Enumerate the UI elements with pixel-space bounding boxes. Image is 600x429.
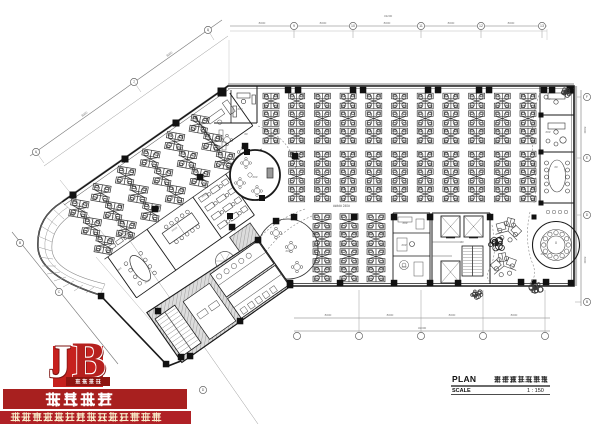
svg-text:32000: 32000	[418, 326, 427, 330]
svg-text:8000: 8000	[384, 21, 391, 25]
svg-text:####: ####	[541, 252, 548, 256]
svg-text:##: ##	[460, 240, 464, 244]
svg-text:11: 11	[419, 24, 423, 28]
svg-text:8000: 8000	[325, 313, 332, 317]
svg-text:8000: 8000	[583, 127, 587, 134]
svg-text:8000: 8000	[508, 21, 515, 25]
svg-text:###: ###	[401, 243, 406, 247]
svg-text:8000: 8000	[387, 313, 394, 317]
svg-text:10: 10	[351, 24, 355, 28]
svg-text:12: 12	[479, 24, 483, 28]
svg-text:8000: 8000	[449, 313, 456, 317]
svg-text:###: ###	[285, 249, 290, 253]
svg-text:###: ###	[401, 265, 406, 269]
svg-text:##### 240#: ##### 240#	[333, 204, 350, 208]
svg-text:8000: 8000	[583, 257, 587, 264]
svg-text:43200: 43200	[384, 14, 393, 18]
svg-text:F: F	[586, 95, 588, 99]
svg-text:8: 8	[555, 241, 557, 245]
svg-text:###: ###	[545, 130, 550, 134]
svg-text:13: 13	[540, 24, 544, 28]
svg-text:##: ##	[244, 132, 248, 136]
svg-text:8000: 8000	[320, 21, 327, 25]
svg-text:###: ###	[252, 175, 257, 179]
svg-text:9: 9	[293, 24, 295, 28]
svg-text:###: ###	[237, 107, 242, 111]
svg-text:8000: 8000	[511, 313, 518, 317]
svg-text:###: ###	[545, 97, 550, 101]
svg-text:##: ##	[554, 165, 558, 169]
svg-text:8000: 8000	[259, 21, 266, 25]
svg-text:###: ###	[402, 221, 407, 225]
svg-text:8000: 8000	[448, 21, 455, 25]
